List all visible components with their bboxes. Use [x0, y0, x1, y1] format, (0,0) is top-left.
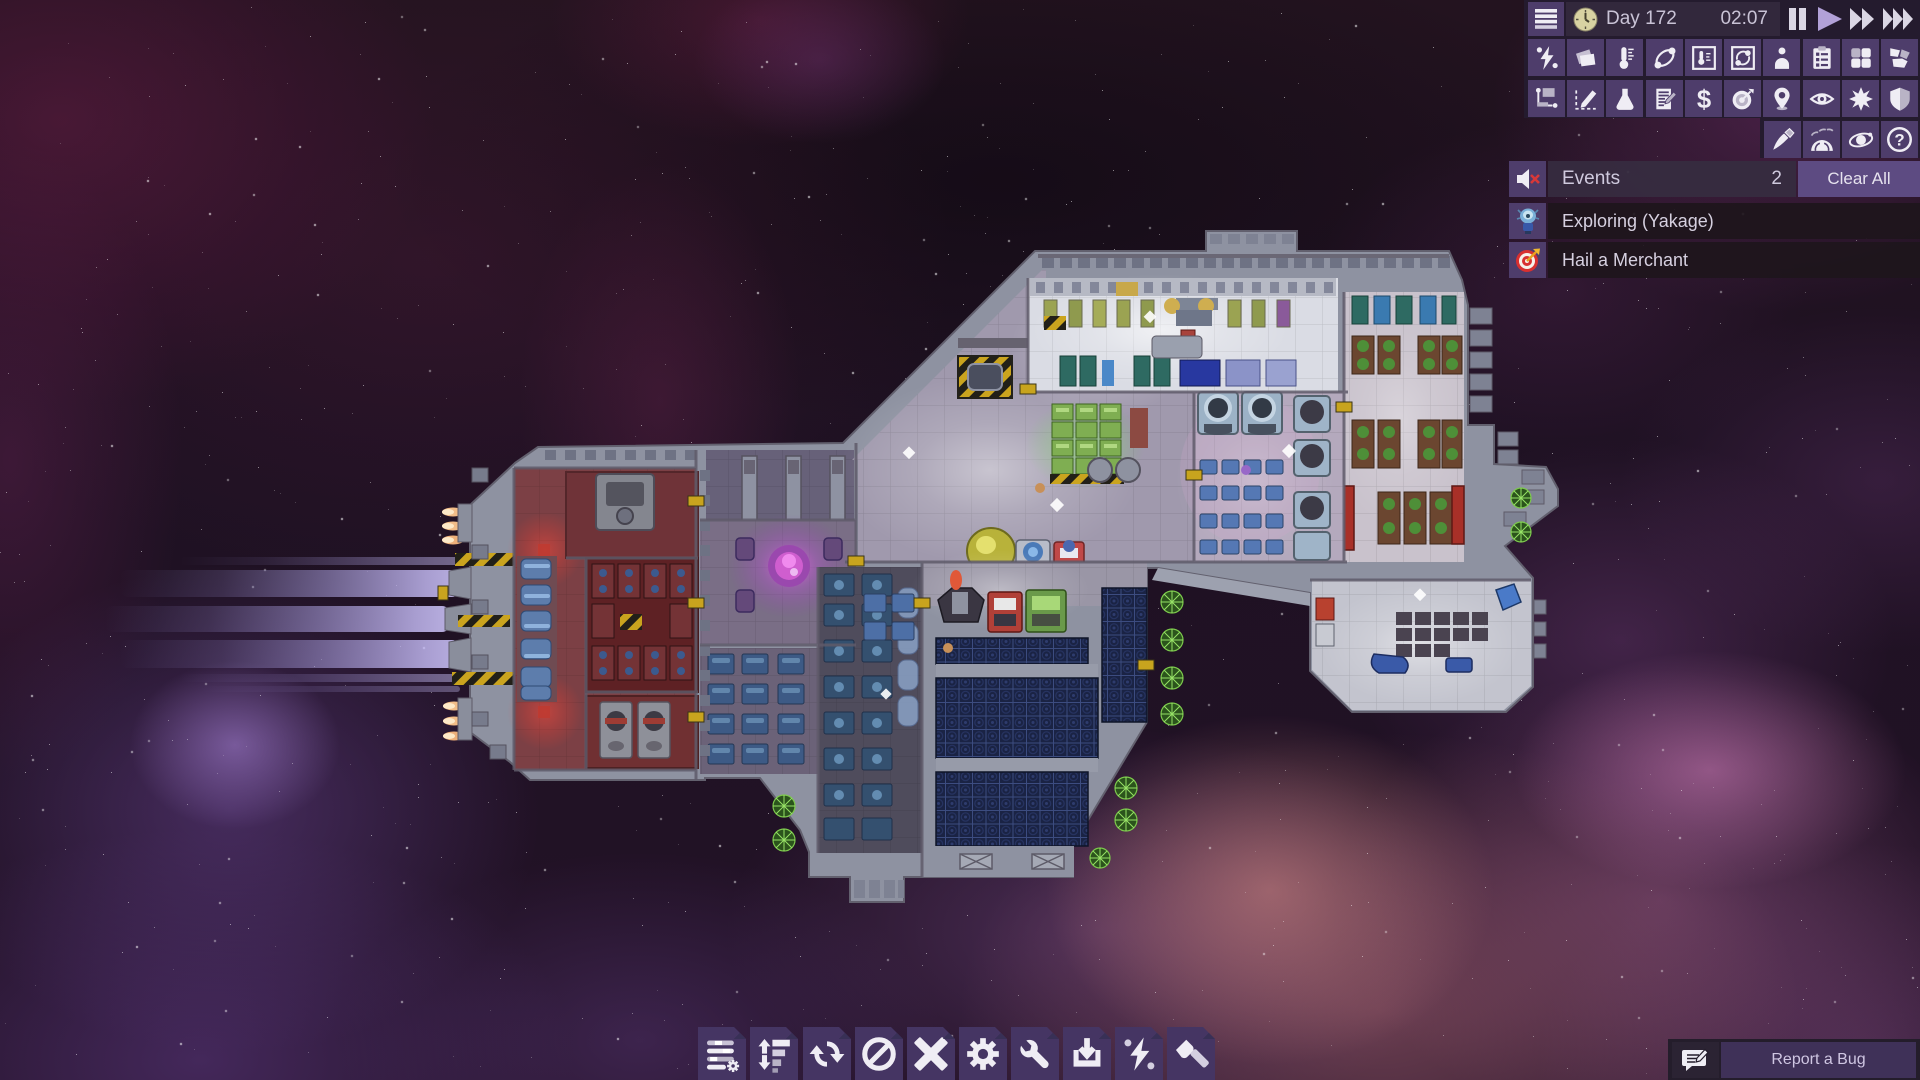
svg-text:$: $ [1696, 85, 1710, 112]
svg-text:?: ? [1894, 131, 1904, 150]
